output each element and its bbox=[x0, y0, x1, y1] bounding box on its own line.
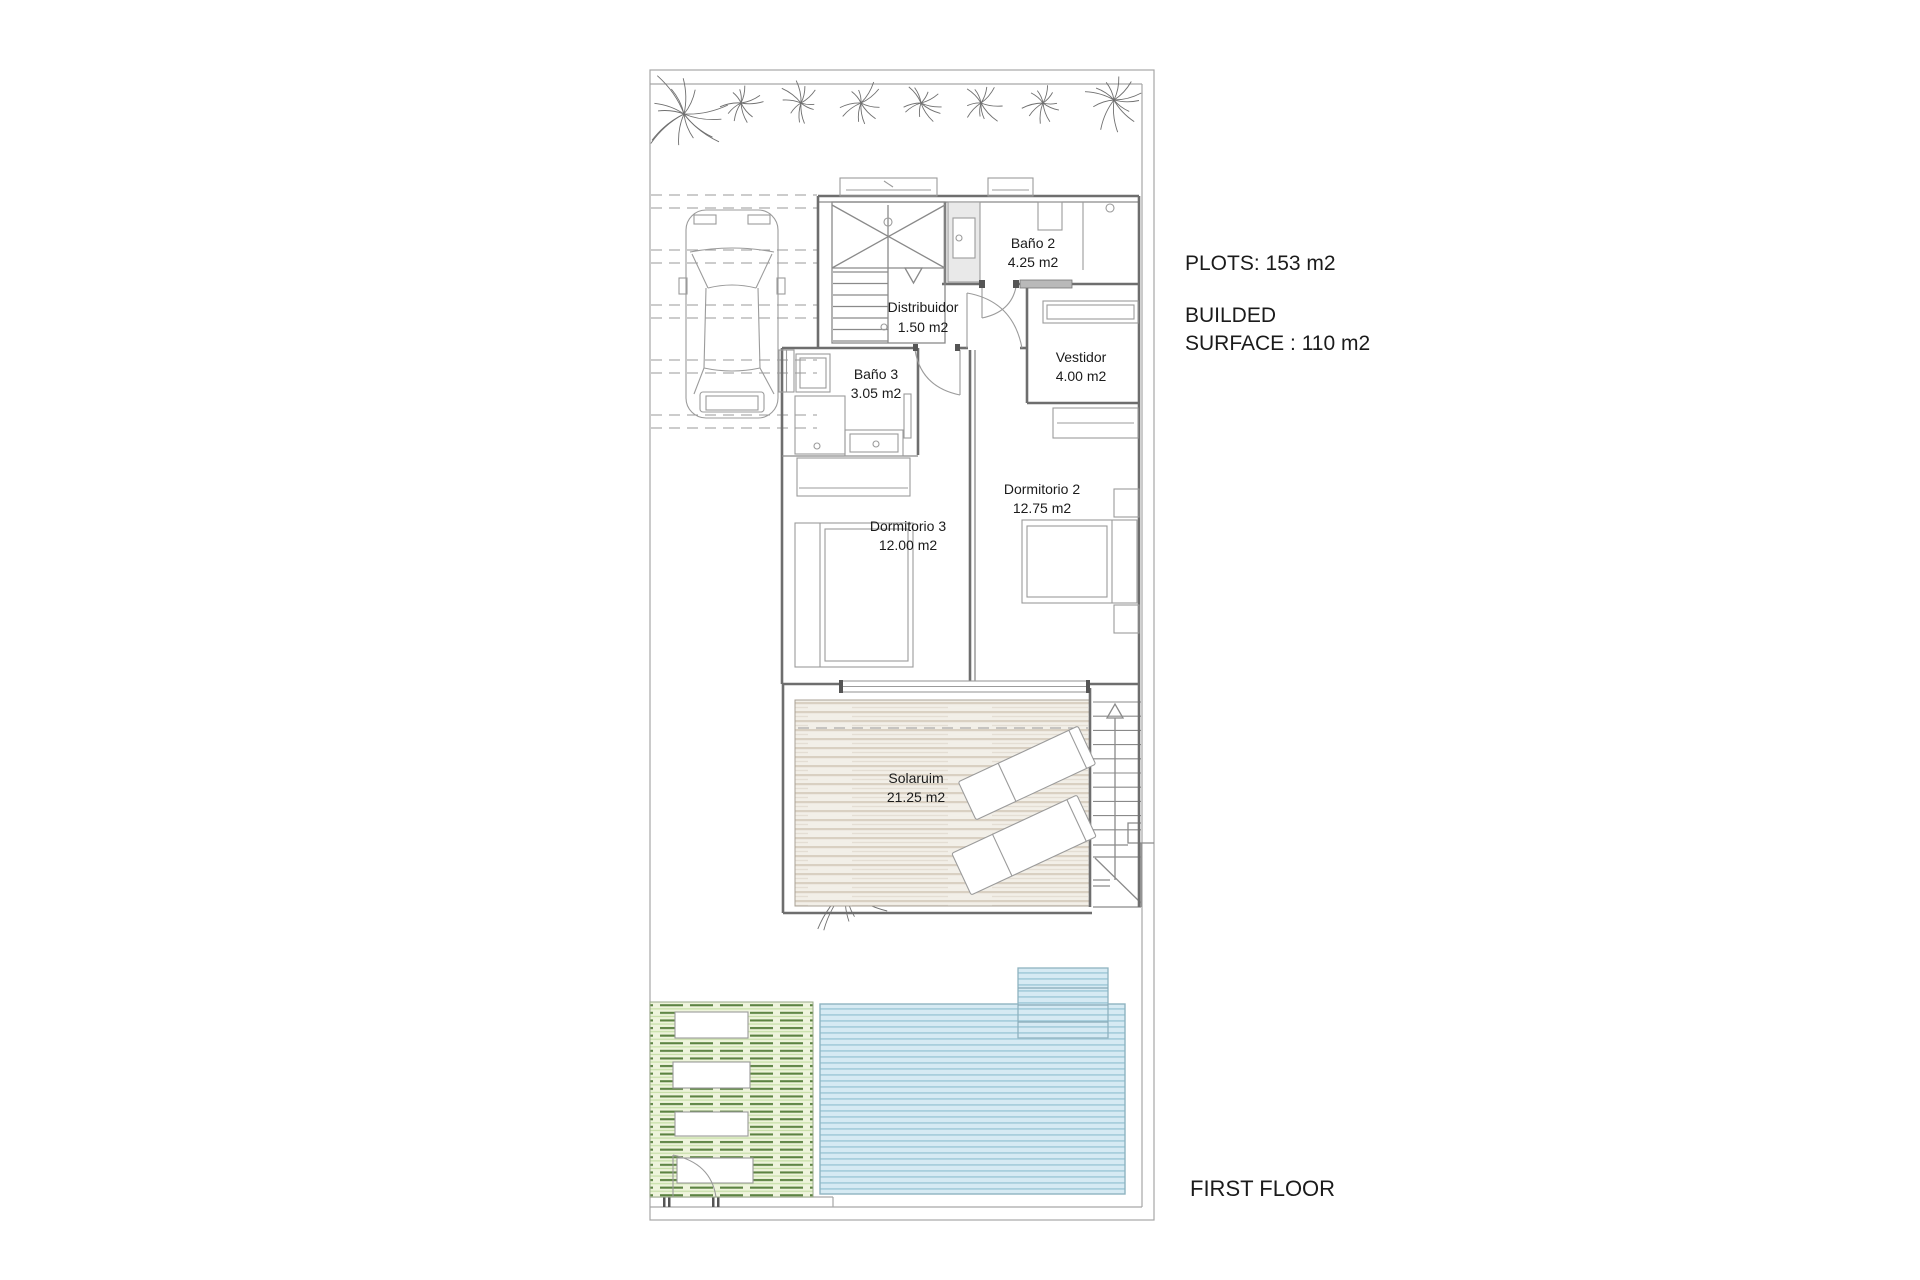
green-deck bbox=[650, 1002, 813, 1197]
roof-window-2 bbox=[988, 178, 1033, 196]
pool bbox=[820, 968, 1125, 1194]
label-dormitorio3-area: 12.00 m2 bbox=[879, 537, 938, 553]
pool-steps bbox=[1018, 968, 1108, 1038]
label-bano3-area: 3.05 m2 bbox=[851, 385, 902, 401]
door-distribuidor bbox=[967, 293, 1022, 348]
door-bedroom-hall bbox=[915, 350, 960, 395]
blueprint-page: Baño 2 4.25 m2 Distribuidor 1.50 m2 Baño… bbox=[0, 0, 1920, 1280]
roof-window-1 bbox=[840, 178, 937, 196]
label-distribuidor-name: Distribuidor bbox=[888, 299, 959, 315]
label-dormitorio2-area: 12.75 m2 bbox=[1013, 500, 1072, 516]
doors bbox=[913, 280, 1022, 395]
entrance-walkway bbox=[650, 1197, 833, 1207]
tree-symbol bbox=[904, 87, 942, 122]
floor-plan-canvas: Baño 2 4.25 m2 Distribuidor 1.50 m2 Baño… bbox=[0, 0, 1920, 1280]
plots-annotation: PLOTS: 153 m2 bbox=[1185, 252, 1336, 275]
exterior-stair bbox=[1093, 702, 1154, 907]
label-solarium-name: Solaruim bbox=[888, 770, 943, 786]
label-bano3-name: Baño 3 bbox=[854, 366, 899, 382]
tree-symbol bbox=[651, 76, 728, 145]
label-vestidor-area: 4.00 m2 bbox=[1056, 368, 1107, 384]
tree-symbol bbox=[782, 81, 816, 124]
label-bano2-area: 4.25 m2 bbox=[1008, 254, 1059, 270]
label-dormitorio2-name: Dormitorio 2 bbox=[1004, 481, 1080, 497]
tree-symbol bbox=[1085, 77, 1141, 133]
label-solarium-area: 21.25 m2 bbox=[887, 789, 946, 805]
builded-annotation-line2: SURFACE : 110 m2 bbox=[1185, 332, 1370, 355]
car bbox=[679, 210, 785, 418]
door-bano2 bbox=[979, 280, 1019, 318]
driveway-dashes bbox=[651, 195, 817, 428]
builded-annotation-line1: BUILDED bbox=[1185, 304, 1276, 327]
label-distribuidor-area: 1.50 m2 bbox=[898, 319, 949, 335]
tree-symbol bbox=[1022, 85, 1059, 124]
label-dormitorio3-name: Dormitorio 3 bbox=[870, 518, 946, 534]
label-bano2-name: Baño 2 bbox=[1011, 235, 1056, 251]
label-vestidor-name: Vestidor bbox=[1056, 349, 1107, 365]
floor-title: FIRST FLOOR bbox=[1190, 1176, 1335, 1201]
tree-symbol bbox=[840, 82, 880, 124]
bedroom-window bbox=[839, 680, 1090, 693]
dorm3-furniture bbox=[795, 458, 913, 667]
tree-symbol bbox=[967, 87, 1003, 121]
tree-symbol bbox=[720, 86, 764, 123]
